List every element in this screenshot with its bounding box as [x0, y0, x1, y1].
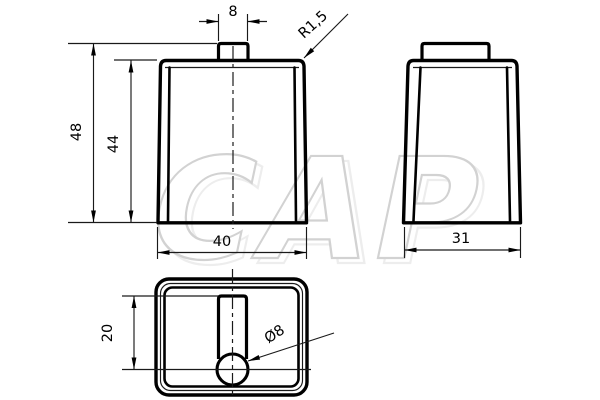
watermark-text: CAP [135, 129, 501, 291]
dim-48-label: 48 [69, 123, 85, 141]
side-view-inner-wall-right [507, 68, 510, 222]
dim-d8-label: Ø8 [262, 322, 288, 347]
dim-hole-diameter: Ø8 [248, 322, 334, 361]
front-view-inner-wall-right [295, 68, 297, 222]
dim-corner-radius: R1,5 [296, 8, 348, 58]
dim-40-label: 40 [213, 234, 231, 250]
watermark: CAP CAP [135, 129, 507, 296]
dim-31-label: 31 [452, 231, 470, 247]
dim-d8-leader [248, 333, 334, 361]
dim-31-arrow-right [509, 248, 521, 253]
dim-44-label: 44 [106, 135, 122, 153]
dim-8-label: 8 [228, 4, 237, 20]
dim-d8-arrow [248, 355, 260, 361]
dim-44-arrow-bottom [129, 211, 134, 223]
technical-drawing-sheet: CAP CAP 8 [0, 0, 600, 400]
dim-44-arrow-top [129, 61, 134, 73]
dim-20-arrow-top [132, 296, 137, 308]
dim-20-label: 20 [100, 324, 116, 342]
dim-8-arrow-left [207, 19, 219, 24]
front-view-inner-wall-left [168, 68, 170, 222]
dim-tab-width: 8 [199, 4, 267, 41]
dim-body-height: 44 [106, 60, 157, 223]
drawing-svg: CAP CAP 8 [0, 0, 600, 400]
dim-8-arrow-right [248, 19, 260, 24]
dim-20-arrow-bottom [132, 358, 137, 370]
dim-48-arrow-top [91, 44, 96, 56]
dim-slot-offset: 20 [100, 296, 218, 370]
side-view-tab [422, 44, 489, 61]
dim-48-arrow-bottom [91, 211, 96, 223]
